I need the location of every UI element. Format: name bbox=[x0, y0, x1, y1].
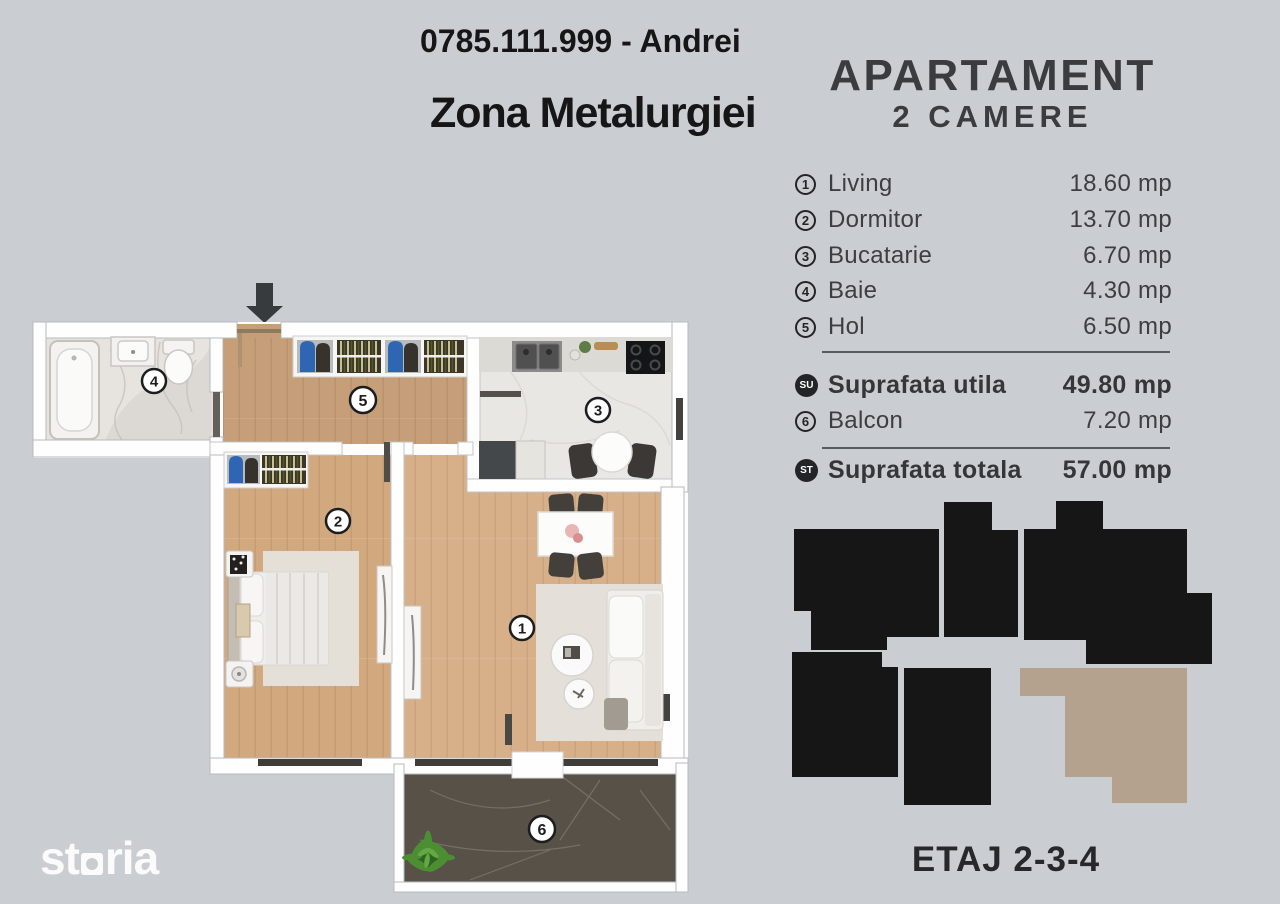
svg-text:4: 4 bbox=[150, 374, 159, 391]
svg-text:1: 1 bbox=[518, 621, 526, 638]
svg-text:2: 2 bbox=[334, 514, 342, 531]
svg-text:3: 3 bbox=[594, 403, 602, 420]
svg-text:6: 6 bbox=[538, 822, 547, 839]
svg-text:5: 5 bbox=[359, 393, 368, 410]
